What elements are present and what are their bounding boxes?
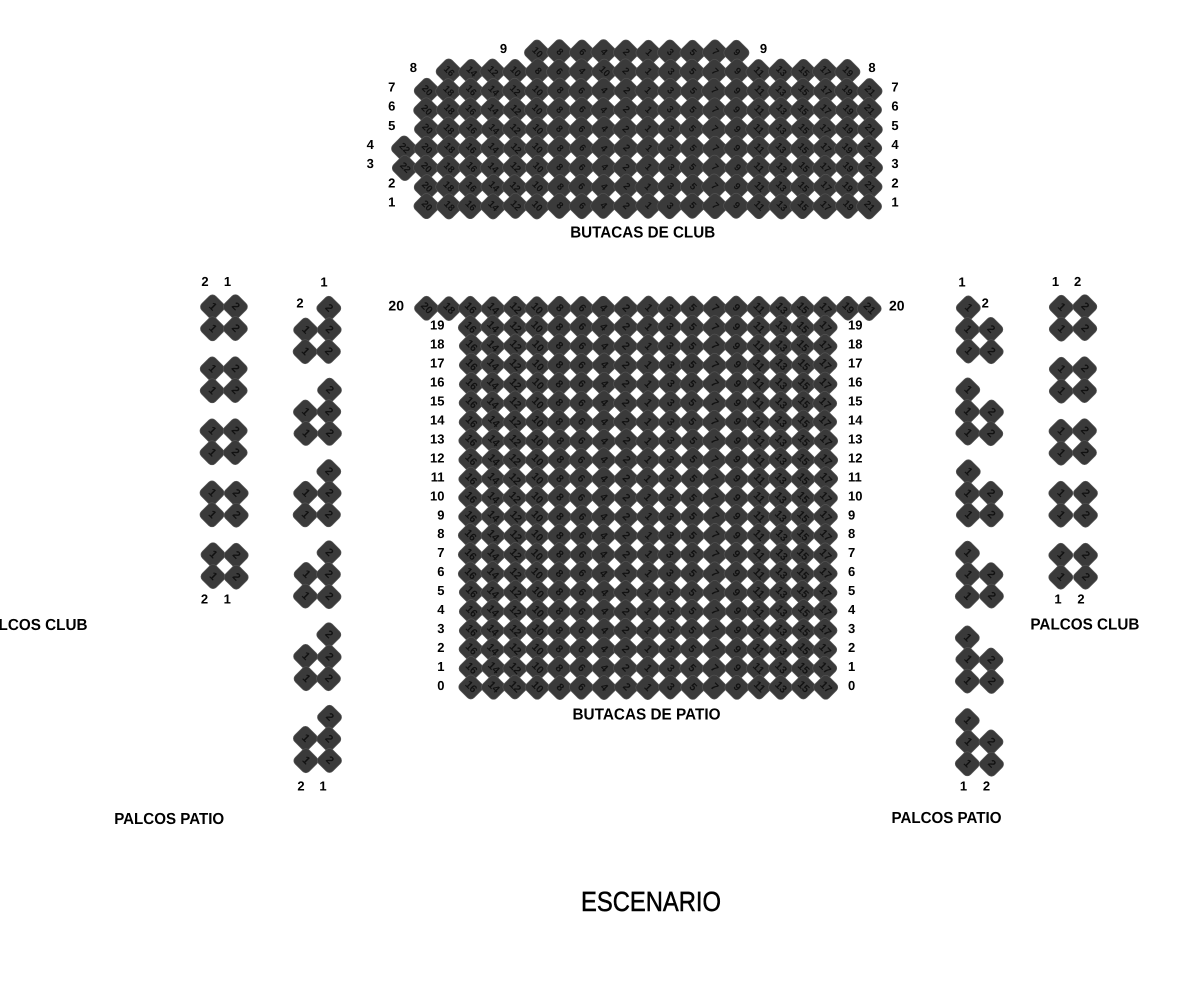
- svg-text:2: 2: [848, 640, 855, 655]
- svg-text:5: 5: [848, 583, 855, 598]
- svg-text:4: 4: [437, 602, 445, 617]
- svg-text:1: 1: [1052, 274, 1059, 289]
- svg-text:19: 19: [848, 318, 862, 333]
- svg-text:7: 7: [437, 545, 444, 560]
- svg-text:11: 11: [431, 469, 445, 484]
- svg-text:1: 1: [319, 779, 326, 794]
- svg-text:15: 15: [430, 394, 444, 409]
- svg-text:14: 14: [430, 413, 445, 428]
- svg-text:4: 4: [891, 137, 899, 152]
- svg-text:20: 20: [388, 297, 404, 313]
- svg-text:16: 16: [848, 375, 862, 390]
- svg-text:BUTACAS DE CLUB: BUTACAS DE CLUB: [570, 225, 715, 242]
- svg-text:2: 2: [388, 175, 395, 190]
- svg-text:2: 2: [201, 274, 208, 289]
- svg-text:BUTACAS DE PATIO: BUTACAS DE PATIO: [573, 707, 721, 724]
- svg-text:2: 2: [983, 779, 990, 794]
- svg-text:8: 8: [410, 60, 417, 75]
- svg-text:9: 9: [848, 507, 855, 522]
- svg-text:9: 9: [437, 507, 444, 522]
- svg-text:1: 1: [224, 592, 231, 607]
- svg-text:6: 6: [388, 99, 395, 114]
- svg-text:16: 16: [430, 375, 444, 390]
- svg-text:9: 9: [500, 41, 507, 56]
- svg-text:10: 10: [430, 488, 444, 503]
- svg-text:13: 13: [848, 432, 862, 447]
- svg-text:2: 2: [201, 592, 208, 607]
- svg-text:0: 0: [437, 678, 444, 693]
- svg-text:18: 18: [430, 337, 444, 352]
- svg-text:13: 13: [430, 432, 444, 447]
- svg-text:9: 9: [760, 41, 767, 56]
- svg-text:10: 10: [848, 488, 862, 503]
- svg-text:7: 7: [848, 545, 855, 560]
- svg-text:ESCENARIO: ESCENARIO: [581, 886, 721, 917]
- svg-text:11: 11: [848, 469, 862, 484]
- svg-text:1: 1: [388, 195, 395, 210]
- svg-text:1: 1: [437, 659, 444, 674]
- svg-text:2: 2: [297, 779, 304, 794]
- svg-text:20: 20: [889, 297, 905, 313]
- svg-text:4: 4: [848, 602, 856, 617]
- svg-text:12: 12: [848, 450, 862, 465]
- svg-text:3: 3: [848, 621, 855, 636]
- svg-text:2: 2: [437, 640, 444, 655]
- svg-text:2: 2: [1074, 274, 1081, 289]
- svg-text:1: 1: [960, 779, 967, 794]
- svg-text:4: 4: [367, 137, 375, 152]
- svg-text:8: 8: [437, 526, 444, 541]
- svg-text:1: 1: [891, 195, 898, 210]
- svg-text:7: 7: [891, 79, 898, 94]
- svg-text:8: 8: [848, 526, 855, 541]
- svg-text:6: 6: [891, 99, 898, 114]
- svg-text:2: 2: [296, 296, 303, 311]
- svg-text:1: 1: [1054, 592, 1061, 607]
- svg-text:PALCOS CLUB: PALCOS CLUB: [0, 617, 88, 634]
- svg-text:3: 3: [891, 156, 898, 171]
- svg-text:1: 1: [224, 274, 231, 289]
- svg-text:PALCOS PATIO: PALCOS PATIO: [114, 811, 224, 828]
- svg-text:7: 7: [388, 79, 395, 94]
- svg-text:2: 2: [1077, 592, 1084, 607]
- svg-text:3: 3: [367, 156, 374, 171]
- svg-text:3: 3: [437, 621, 444, 636]
- svg-text:PALCOS PATIO: PALCOS PATIO: [892, 810, 1002, 827]
- svg-text:17: 17: [848, 356, 862, 371]
- svg-text:1: 1: [848, 659, 855, 674]
- svg-text:15: 15: [848, 394, 862, 409]
- svg-text:8: 8: [868, 60, 875, 75]
- svg-text:2: 2: [891, 175, 898, 190]
- svg-text:2: 2: [982, 296, 989, 311]
- svg-text:0: 0: [848, 678, 855, 693]
- svg-text:5: 5: [388, 118, 395, 133]
- svg-text:17: 17: [430, 356, 444, 371]
- svg-text:18: 18: [848, 337, 862, 352]
- svg-text:14: 14: [848, 413, 863, 428]
- svg-text:PALCOS CLUB: PALCOS CLUB: [1030, 617, 1139, 634]
- svg-text:1: 1: [320, 275, 327, 290]
- svg-text:6: 6: [848, 564, 855, 579]
- svg-text:1: 1: [958, 275, 965, 290]
- svg-text:5: 5: [437, 583, 444, 598]
- svg-text:5: 5: [891, 118, 898, 133]
- svg-text:12: 12: [430, 450, 444, 465]
- svg-text:6: 6: [437, 564, 444, 579]
- svg-text:19: 19: [430, 318, 444, 333]
